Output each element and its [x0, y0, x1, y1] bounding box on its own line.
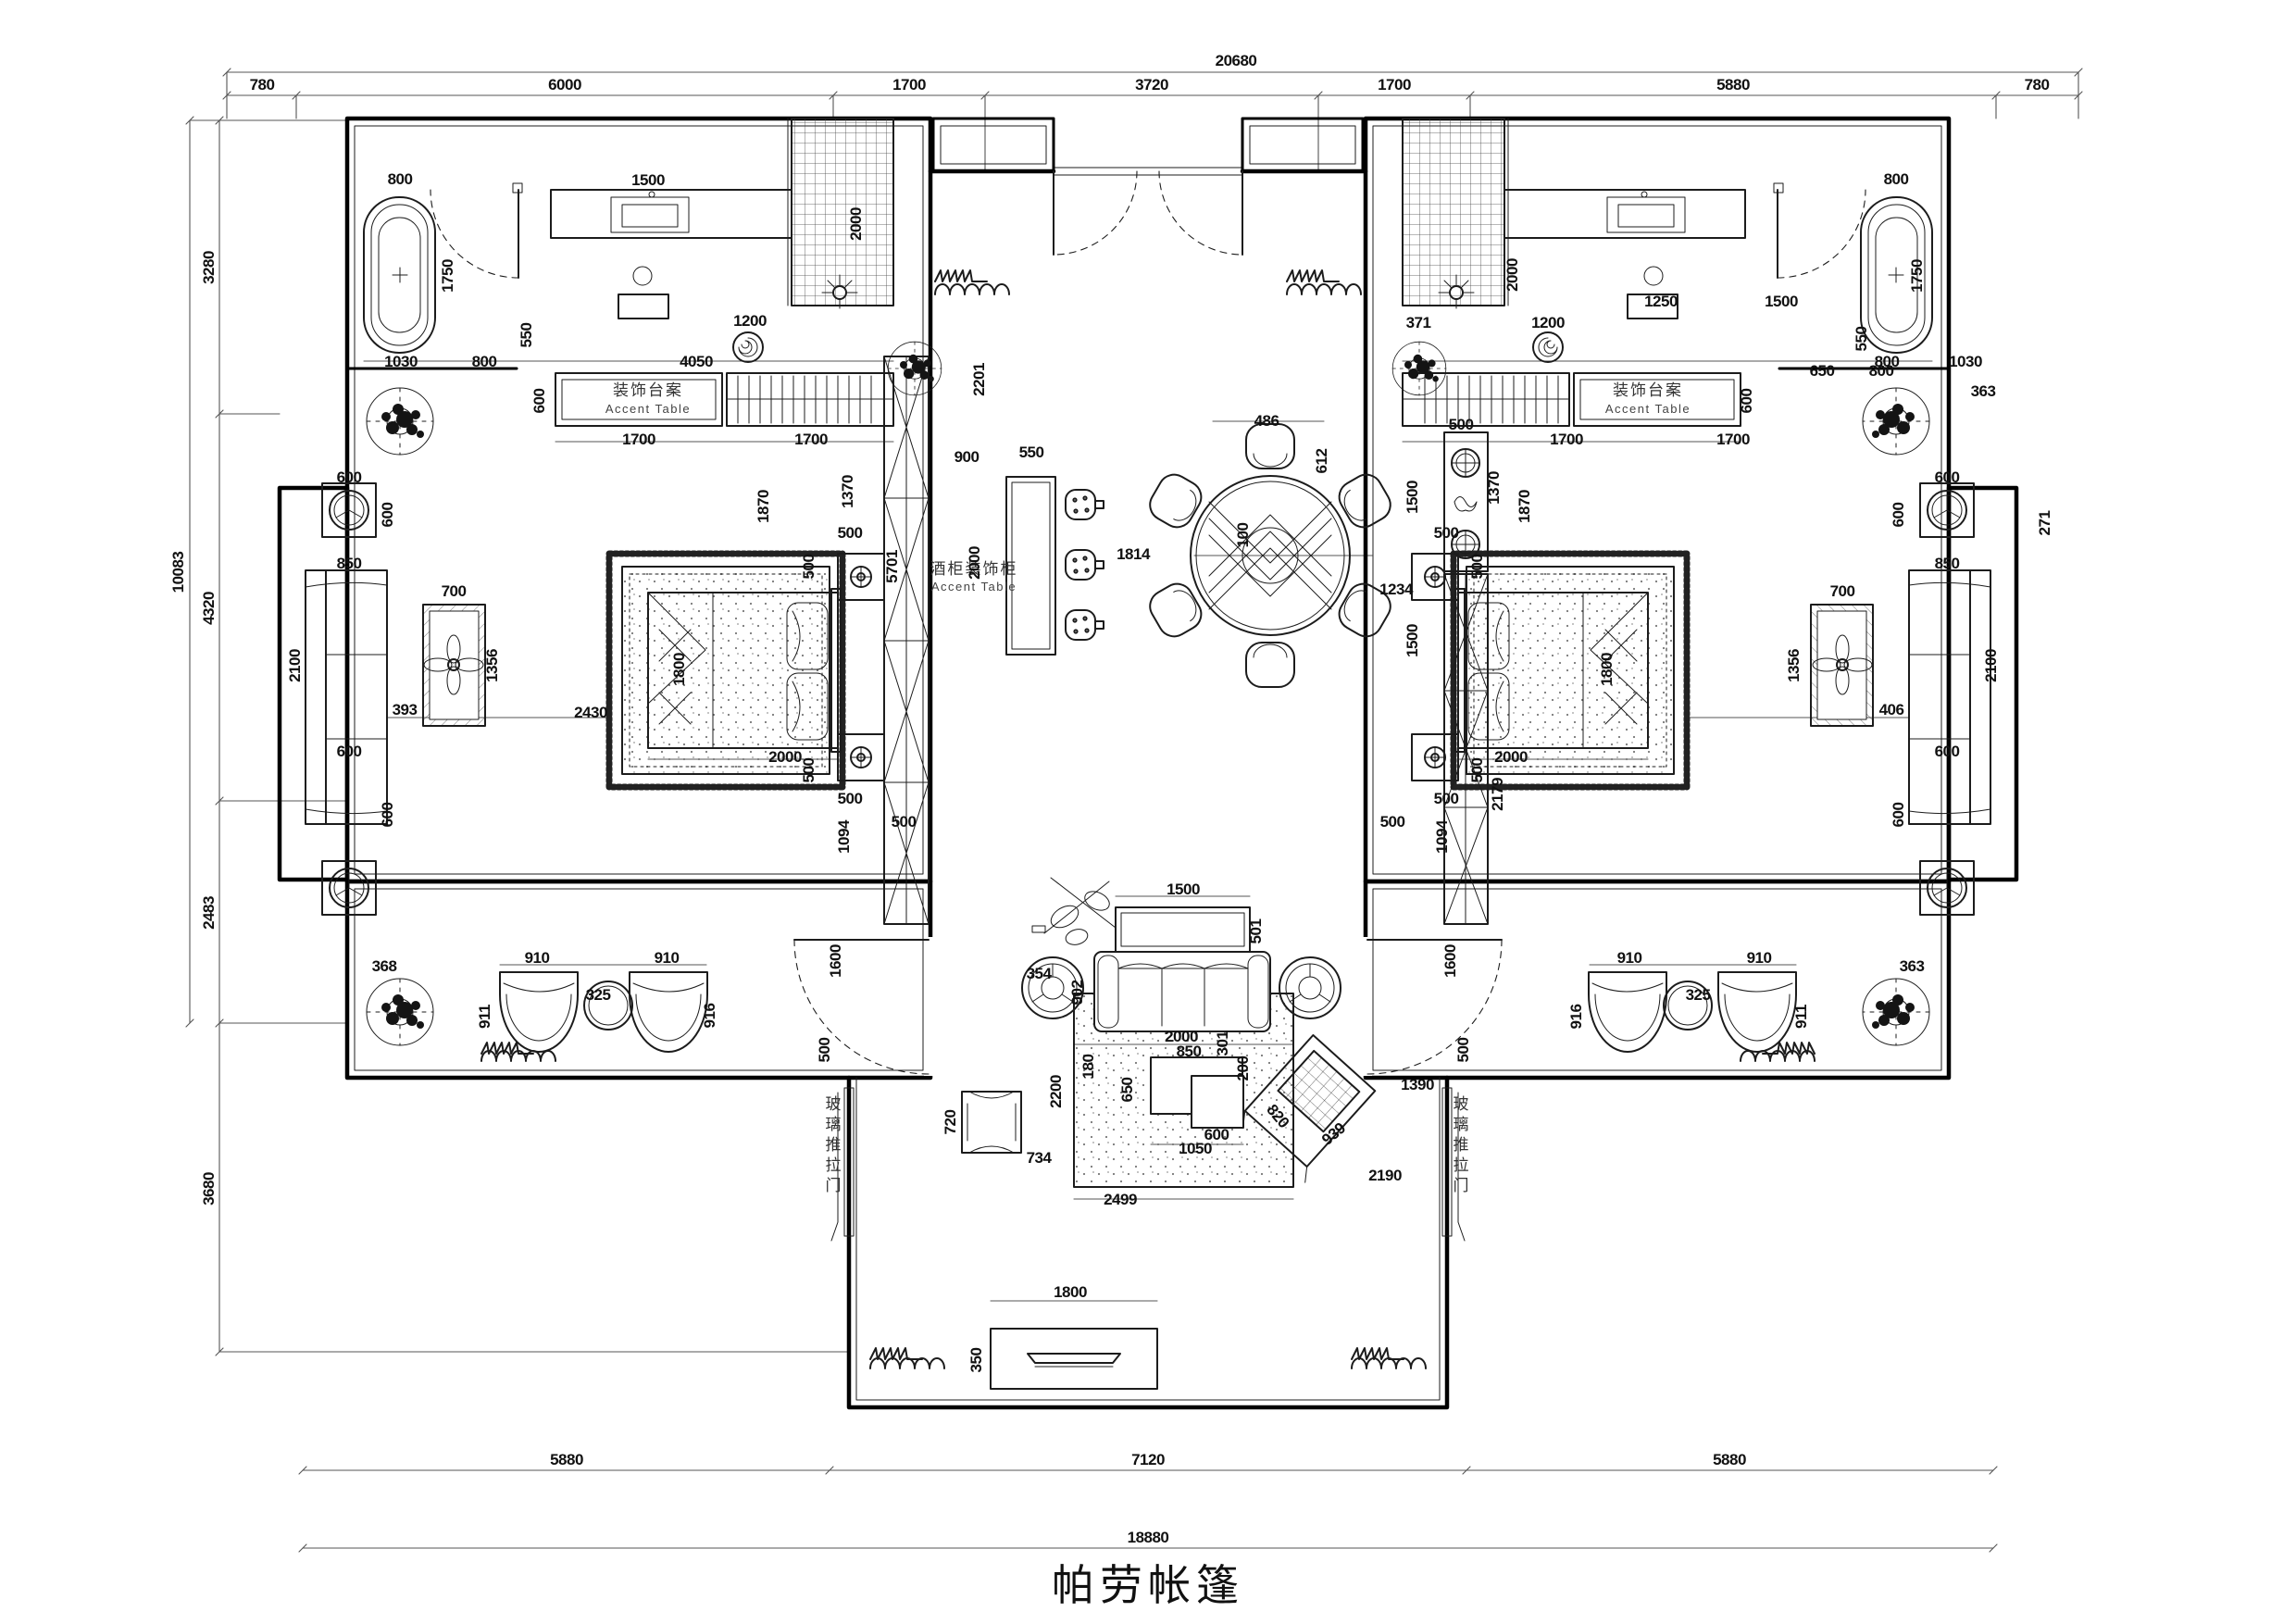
dim-label: 1600 — [827, 944, 844, 978]
dim-label: 1356 — [1785, 649, 1803, 682]
dim-label: 911 — [1792, 1005, 1810, 1029]
dim-label: 550 — [518, 323, 535, 348]
bathtub — [364, 197, 435, 353]
dim-label: 501 — [1247, 919, 1265, 944]
dim-label: 910 — [655, 949, 680, 967]
bed-rug — [609, 554, 842, 787]
dim-label: 363 — [1971, 382, 1996, 400]
dim-label: 1030 — [1949, 353, 1982, 370]
dim-label: 5880 — [550, 1451, 583, 1468]
dim-label: 600 — [1890, 503, 1907, 528]
dim-label: 7120 — [1131, 1451, 1165, 1468]
dim-label: 612 — [1313, 449, 1330, 474]
dim-label: 装饰台案 — [613, 381, 683, 399]
dim-label: 911 — [476, 1005, 493, 1029]
dim-label: 10083 — [169, 552, 187, 593]
dim-label: 850 — [1935, 555, 1960, 572]
drawing-sheet: 2068078060001700372017005880780100833280… — [0, 0, 2296, 1624]
dim-label: 2201 — [970, 363, 988, 396]
dim-label: 600 — [337, 743, 362, 760]
sofa-console — [1116, 907, 1250, 952]
dim-label: 301 — [1214, 1031, 1231, 1056]
dim-label: 20680 — [1216, 52, 1257, 69]
dim-label: 900 — [955, 448, 980, 466]
dim-label: 800 — [472, 353, 497, 370]
dim-label: 1700 — [1378, 76, 1411, 94]
dim-label: 700 — [442, 582, 467, 600]
dim-label: 1356 — [483, 649, 501, 682]
dim-label: 1500 — [631, 171, 665, 189]
dim-label: 500 — [1380, 813, 1405, 831]
vanity-counter — [551, 190, 792, 238]
dim-label: 500 — [1449, 416, 1474, 433]
dim-label: 600 — [1935, 468, 1960, 486]
dim-label: 2000 — [1494, 748, 1528, 766]
dim-label: 600 — [1935, 743, 1960, 760]
dim-label: 1814 — [1117, 545, 1151, 563]
dim-label: 1750 — [1908, 259, 1926, 293]
dim-label: 1500 — [1167, 881, 1200, 898]
dim-label: 2190 — [1368, 1167, 1402, 1184]
dim-label: 734 — [1027, 1149, 1053, 1167]
dim-label: 800 — [388, 170, 413, 188]
dim-label: 910 — [525, 949, 550, 967]
dim-label: 550 — [1853, 327, 1870, 352]
dim-label: 2430 — [574, 704, 607, 721]
living-sofa — [1094, 952, 1270, 1031]
dim-label: 600 — [530, 389, 548, 414]
dim-label: 1370 — [1485, 471, 1503, 505]
dim-label: 500 — [816, 1038, 833, 1063]
dim-label: 368 — [372, 957, 397, 975]
dim-label: 850 — [337, 555, 362, 572]
dim-label: 1094 — [835, 819, 853, 854]
dim-label: 500 — [1434, 790, 1459, 807]
terrace-door — [794, 940, 929, 1074]
dim-label: 500 — [800, 758, 817, 783]
dim-label: 2179 — [1489, 778, 1506, 811]
dim-label: 325 — [586, 986, 611, 1004]
tv-shelf — [991, 1329, 1157, 1389]
dim-label: 850 — [1177, 1043, 1202, 1060]
dim-label: 780 — [250, 76, 275, 94]
dim-label: 600 — [379, 503, 396, 528]
dim-label: 2000 — [847, 207, 865, 241]
coffee-table-small — [1192, 1076, 1243, 1128]
vanity-stool — [618, 294, 668, 319]
dim-label: 500 — [892, 813, 917, 831]
left-suite — [280, 119, 935, 1078]
dim-label: 1800 — [670, 653, 688, 686]
dim-label: 720 — [942, 1110, 959, 1135]
dim-label: 325 — [1686, 986, 1711, 1004]
bath-accessory — [633, 267, 652, 285]
dim-label: Accent Table — [605, 402, 691, 416]
dim-label: 1800 — [1598, 653, 1616, 686]
dim-label: 4050 — [680, 353, 713, 370]
dim-label: 1700 — [1550, 431, 1583, 448]
entry-doors — [1054, 171, 1242, 255]
dim-label: 650 — [1118, 1078, 1136, 1103]
dim-label: 1700 — [622, 431, 655, 448]
dim-label: 393 — [393, 701, 418, 718]
dim-label: 650 — [1810, 362, 1835, 380]
dim-label: 916 — [1567, 1005, 1585, 1030]
drawing-title: 帕劳帐篷 — [0, 1552, 2296, 1613]
dim-label: 500 — [1454, 1038, 1472, 1063]
dim-label: 1370 — [839, 475, 856, 508]
dim-label: 500 — [1468, 555, 1486, 580]
dim-label: 910 — [1747, 949, 1772, 967]
dim-label: 1700 — [794, 431, 828, 448]
dim-label: 200 — [1234, 1056, 1252, 1081]
dim-label: 916 — [701, 1004, 718, 1029]
dim-label: 1200 — [1531, 314, 1565, 331]
dim-label: Accent Table — [1605, 402, 1691, 416]
dim-label: 1500 — [1765, 293, 1798, 310]
dim-label: 780 — [2025, 76, 2050, 94]
dim-label: 700 — [1830, 582, 1855, 600]
dim-label: 6000 — [548, 76, 581, 94]
dim-label: 910 — [1617, 949, 1642, 967]
dim-label: 玻璃推拉门 — [1454, 1095, 1471, 1194]
pouf-table — [423, 605, 485, 726]
floor-plan-svg: 2068078060001700372017005880780100833280… — [0, 0, 2296, 1624]
dim-label: 500 — [1434, 524, 1459, 542]
dim-label: 500 — [838, 524, 863, 542]
dim-label: 1390 — [1401, 1076, 1434, 1093]
dim-label: 1094 — [1433, 819, 1451, 854]
dim-label: 3720 — [1135, 76, 1168, 94]
dim-label: 2100 — [1982, 649, 2000, 682]
dim-label: 1200 — [733, 312, 767, 330]
dim-label: Accent Table — [931, 580, 1017, 593]
dim-label: 玻璃推拉门 — [826, 1095, 843, 1194]
dim-label: 180 — [1079, 1055, 1097, 1080]
dimension-labels: 2068078060001700372017005880780100833280… — [169, 52, 2053, 1546]
dim-label: 406 — [1879, 701, 1904, 718]
dim-label: 1600 — [1441, 944, 1459, 978]
dim-label: 2499 — [1104, 1191, 1137, 1208]
dim-label: 装饰台案 — [1613, 381, 1683, 399]
dim-label: 1870 — [1516, 490, 1533, 523]
dim-label: 2100 — [286, 649, 304, 682]
dim-label: 500 — [1468, 758, 1486, 783]
dim-label: 500 — [838, 790, 863, 807]
dim-label: 2000 — [1504, 258, 1521, 292]
dim-label: 5880 — [1713, 1451, 1746, 1468]
dim-label: 350 — [967, 1348, 985, 1373]
dim-label: 371 — [1406, 314, 1431, 331]
dim-label: 600 — [337, 468, 362, 486]
dim-label: 18880 — [1128, 1529, 1169, 1546]
dim-label: 363 — [1900, 957, 1925, 975]
dim-label: 1030 — [384, 353, 418, 370]
dim-label: 486 — [1254, 412, 1279, 430]
dim-label: 1700 — [892, 76, 926, 94]
dim-label: 1870 — [755, 490, 772, 523]
dim-label: 1800 — [1054, 1283, 1087, 1301]
dim-label: 3680 — [200, 1172, 218, 1206]
dim-label: 1500 — [1404, 481, 1421, 514]
dim-label: 4320 — [200, 592, 218, 625]
floor-lamp — [1032, 878, 1116, 947]
dim-label: 500 — [800, 555, 817, 580]
dim-label: 902 — [1068, 981, 1086, 1006]
dim-label: 1500 — [1404, 624, 1421, 657]
dim-label: 271 — [2036, 511, 2053, 536]
dim-label: 2483 — [200, 896, 218, 930]
dim-label: 1700 — [1716, 431, 1750, 448]
dim-label: 5880 — [1716, 76, 1750, 94]
center-hall — [888, 119, 1446, 395]
dim-label: 5701 — [883, 550, 901, 583]
dim-label: 354 — [1027, 965, 1053, 982]
round-pouf-right — [1279, 957, 1341, 1018]
dim-label: 2000 — [768, 748, 802, 766]
dim-label: 2200 — [1047, 1075, 1065, 1108]
dim-label: 800 — [1884, 170, 1909, 188]
dim-label: 600 — [1738, 389, 1755, 414]
dim-label: 3280 — [200, 251, 218, 284]
dim-label: 2000 — [966, 546, 983, 580]
dim-label: 600 — [379, 803, 396, 828]
dim-label: 1250 — [1644, 293, 1678, 310]
dim-label: 600 — [1890, 803, 1907, 828]
dim-label: 800 — [1869, 362, 1894, 380]
dim-label: 1750 — [439, 259, 456, 293]
armchair — [962, 1092, 1021, 1153]
dim-label: 1234 — [1379, 581, 1414, 598]
wardrobe — [727, 373, 893, 426]
shower — [788, 119, 893, 308]
dim-label: 550 — [1019, 443, 1044, 461]
dim-label: 1050 — [1179, 1140, 1212, 1157]
dim-label: 100 — [1234, 523, 1252, 548]
